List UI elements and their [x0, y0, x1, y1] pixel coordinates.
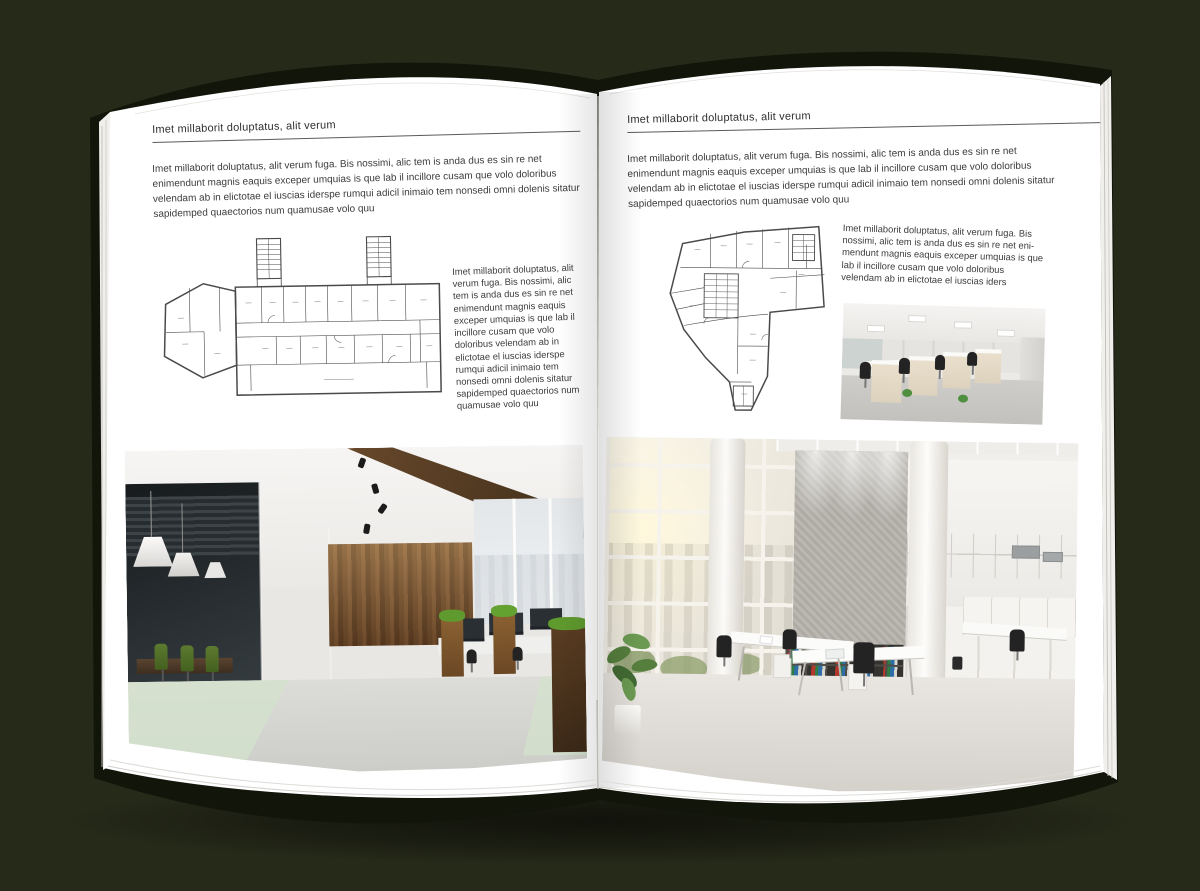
black-office-chair	[717, 635, 732, 657]
green-office-chair	[205, 646, 218, 672]
ceiling-light	[996, 330, 1014, 337]
grass-top	[548, 616, 588, 630]
black-office-chair	[935, 354, 945, 369]
left-caption: Imet millaborit doluptatus, alit verum f…	[452, 261, 593, 412]
black-office-chair	[466, 649, 476, 663]
photo-small-white-office	[840, 303, 1045, 425]
photo-bright-atrium-office	[602, 437, 1079, 796]
cubicle-cabinet	[871, 360, 902, 403]
cubicle-cabinet	[975, 349, 1002, 384]
magazine-spread-mockup: Imet millaborit doluptatus, alit verum I…	[0, 0, 1200, 891]
ceiling-light	[954, 321, 972, 328]
concrete-feature-wall	[792, 450, 908, 656]
floor-plan-left-drawing	[156, 229, 451, 422]
black-office-chair	[853, 643, 874, 674]
wood-planter-large	[551, 626, 587, 752]
plant-pot	[614, 704, 640, 734]
grass-top	[439, 609, 465, 621]
green-office-chair	[155, 644, 168, 670]
ceiling-light	[908, 315, 926, 322]
floor	[602, 673, 1076, 796]
photo-dark-office	[125, 445, 588, 781]
black-office-chair	[967, 352, 977, 366]
grass-top	[491, 605, 517, 617]
waste-bin	[953, 656, 963, 669]
air-vent	[1012, 546, 1040, 559]
black-office-chair	[783, 629, 797, 649]
right-caption: Imet millaborit doluptatus, alit verum f…	[841, 222, 1048, 290]
left-page: Imet millaborit doluptatus, alit verum I…	[0, 0, 600, 891]
black-office-chair	[1009, 629, 1024, 651]
air-vent	[1043, 552, 1063, 562]
right-intro-paragraph: Imet millaborit doluptatus, alit verum f…	[627, 143, 1068, 212]
papers	[825, 649, 845, 660]
papers	[759, 635, 773, 644]
floor-plan-right-drawing	[645, 213, 837, 417]
black-office-chair	[898, 358, 909, 374]
floor-plan-right	[645, 213, 837, 417]
desk-plant	[902, 388, 912, 396]
cubicle-cabinet	[908, 356, 938, 396]
right-page: Imet millaborit doluptatus, alit verum I…	[600, 0, 1200, 891]
wood-planter	[441, 618, 464, 676]
black-office-chair	[860, 362, 871, 379]
left-intro-paragraph: Imet millaborit doluptatus, alit verum f…	[152, 150, 593, 221]
floor-plan-left	[156, 229, 451, 422]
window-wall	[473, 498, 585, 625]
ceiling-light	[867, 325, 885, 332]
black-office-chair	[512, 647, 522, 661]
wood-planter	[493, 614, 516, 674]
green-office-chair	[180, 645, 193, 671]
